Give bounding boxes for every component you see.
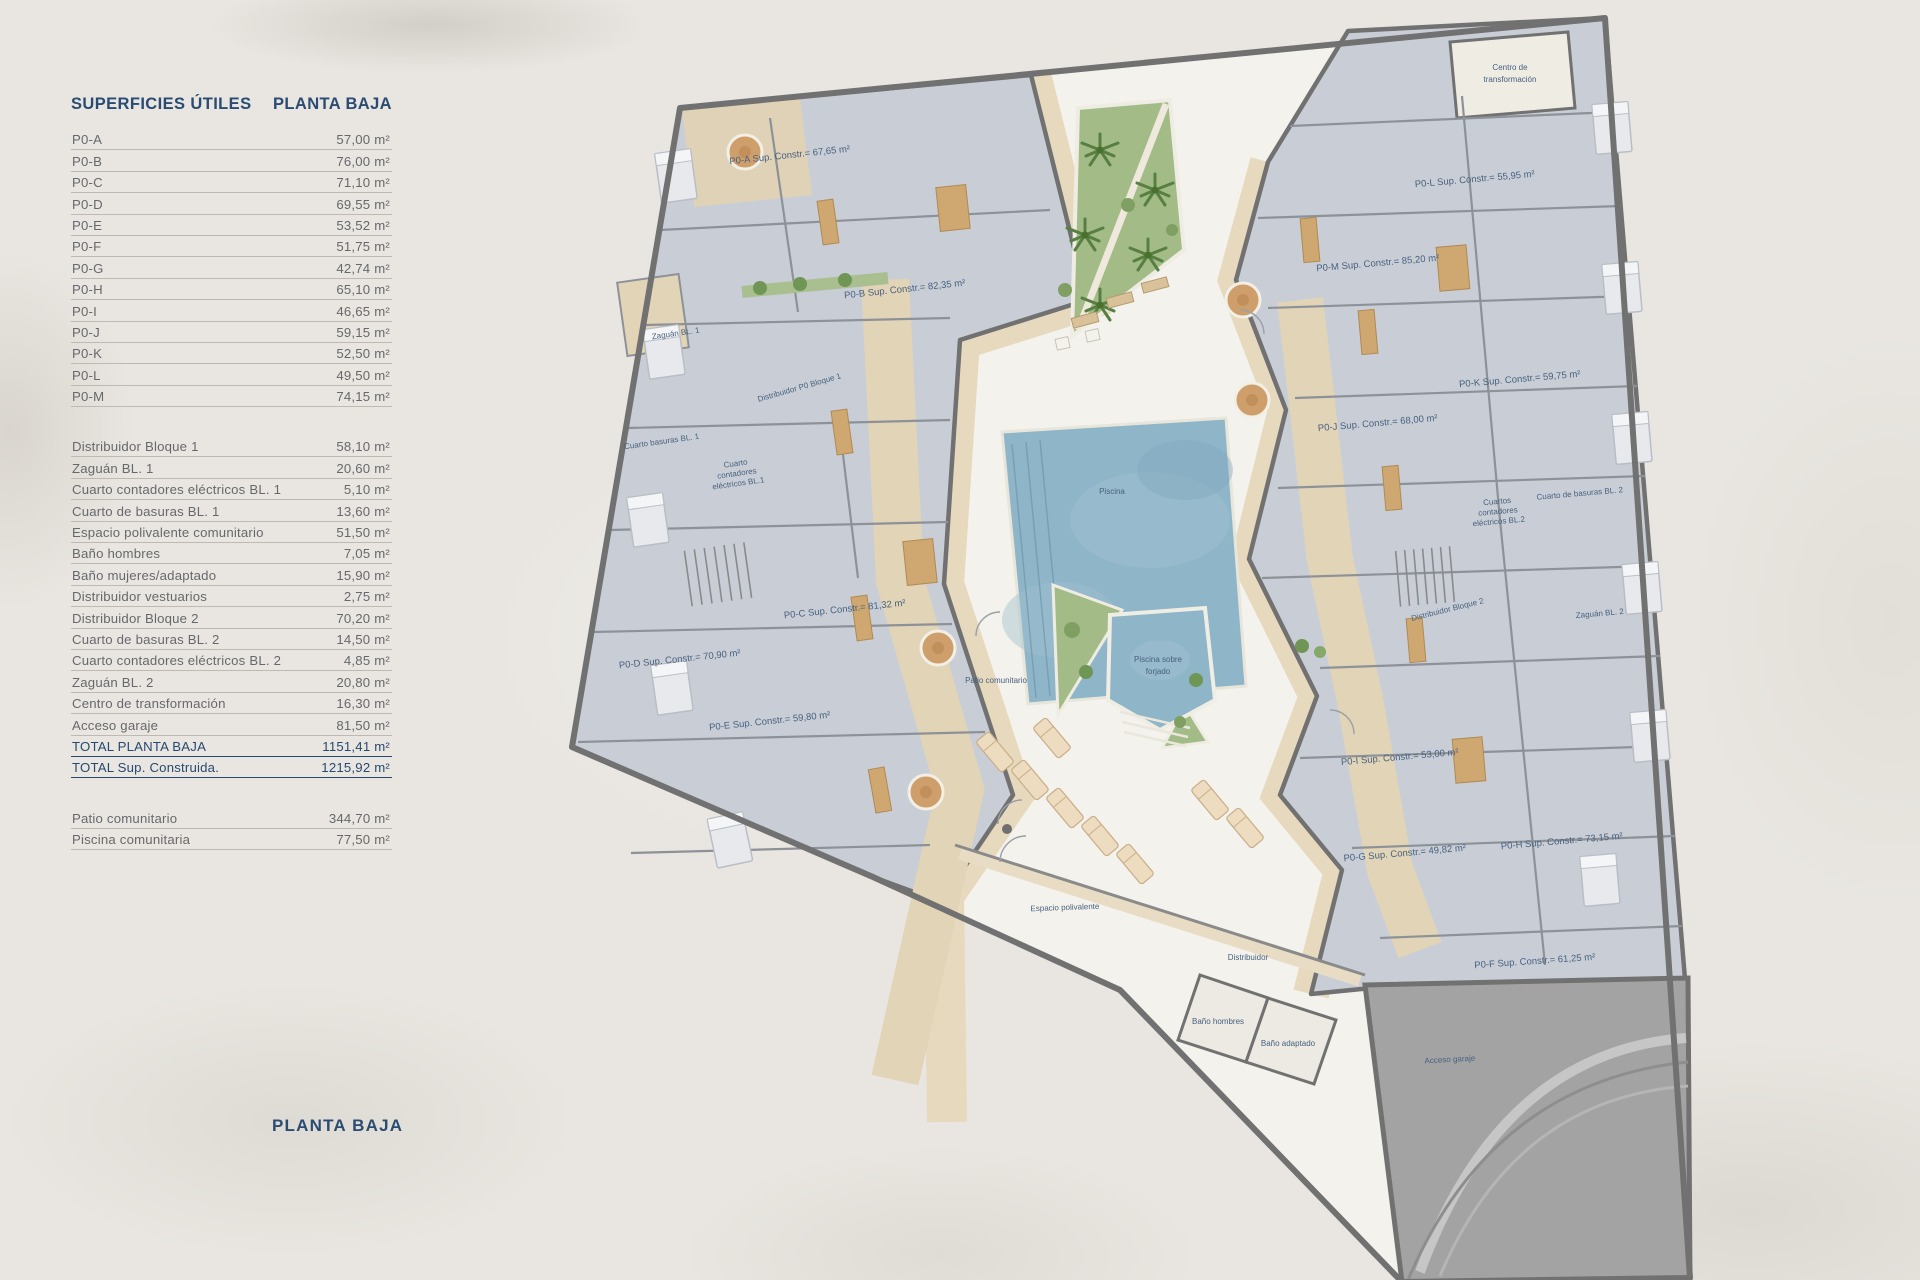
table-row: Patio comunitario344,70 m² [71, 807, 392, 828]
table-row: Centro de transformación16,30 m² [71, 693, 392, 714]
row-label: Cuarto contadores eléctricos BL. 1 [72, 482, 281, 497]
row-label: Baño hombres [72, 546, 160, 561]
svg-text:Centro de: Centro de [1492, 63, 1528, 72]
row-label: Patio comunitario [72, 811, 177, 826]
row-label: Piscina comunitaria [72, 832, 190, 847]
row-value: 71,10 m² [336, 175, 390, 190]
row-label: Zaguán BL. 1 [72, 461, 154, 476]
table-row: P0-I46,65 m² [71, 300, 392, 321]
table-row: P0-J59,15 m² [71, 322, 392, 343]
svg-text:Piscina sobre: Piscina sobre [1134, 655, 1183, 664]
row-label: Baño mujeres/adaptado [72, 568, 216, 583]
table-title: SUPERFICIES ÚTILES [71, 95, 251, 114]
row-label: Distribuidor Bloque 2 [72, 611, 199, 626]
bano-adaptado-label: Baño adaptado [1261, 1039, 1316, 1048]
svg-text:forjado: forjado [1146, 667, 1171, 676]
row-label: P0-D [72, 197, 103, 212]
row-label: P0-C [72, 175, 103, 190]
row-value: 20,80 m² [336, 675, 390, 690]
row-value: 77,50 m² [336, 832, 390, 847]
distribuidor-label: Distribuidor [1228, 953, 1269, 962]
row-label: P0-K [72, 346, 102, 361]
row-value: 20,60 m² [336, 461, 390, 476]
areas-table: SUPERFICIES ÚTILES PLANTA BAJA P0-A57,00… [71, 95, 392, 850]
table-row: P0-K52,50 m² [71, 343, 392, 364]
row-value: 16,30 m² [336, 696, 390, 711]
unit-area-rows: P0-A57,00 m²P0-B76,00 m²P0-C71,10 m²P0-D… [71, 129, 392, 407]
table-row: Piscina comunitaria77,50 m² [71, 829, 392, 850]
row-label: Espacio polivalente comunitario [72, 525, 264, 540]
row-value: 57,00 m² [336, 132, 390, 147]
row-label: Cuarto de basuras BL. 2 [72, 632, 220, 647]
table-row: Distribuidor vestuarios2,75 m² [71, 586, 392, 607]
table-row: Zaguán BL. 120,60 m² [71, 457, 392, 478]
pool-label: Piscina [1099, 487, 1125, 496]
table-header: SUPERFICIES ÚTILES PLANTA BAJA [71, 95, 392, 114]
table-row: Espacio polivalente comunitario51,50 m² [71, 522, 392, 543]
table-row: P0-M74,15 m² [71, 386, 392, 407]
row-label: P0-J [72, 325, 100, 340]
table-row: P0-L49,50 m² [71, 364, 392, 385]
table-row: Distribuidor Bloque 158,10 m² [71, 436, 392, 457]
table-row: Cuarto de basuras BL. 214,50 m² [71, 629, 392, 650]
row-value: 81,50 m² [336, 718, 390, 733]
table-row: Distribuidor Bloque 270,20 m² [71, 607, 392, 628]
row-value: 51,50 m² [336, 525, 390, 540]
table-subtitle: PLANTA BAJA [273, 95, 392, 114]
row-label: P0-G [72, 261, 104, 276]
row-value: 42,74 m² [336, 261, 390, 276]
row-label: TOTAL Sup. Construida. [72, 760, 219, 775]
row-value: 7,05 m² [344, 546, 390, 561]
row-value: 5,10 m² [344, 482, 390, 497]
row-value: 1151,41 m² [322, 739, 390, 754]
row-value: 58,10 m² [336, 439, 390, 454]
table-row: P0-E53,52 m² [71, 215, 392, 236]
table-row: P0-G42,74 m² [71, 257, 392, 278]
row-value: 49,50 m² [336, 368, 390, 383]
row-value: 13,60 m² [336, 504, 390, 519]
table-row: Baño hombres7,05 m² [71, 543, 392, 564]
row-value: 53,52 m² [336, 218, 390, 233]
total-row: TOTAL PLANTA BAJA1151,41 m² [71, 736, 392, 757]
row-label: P0-E [72, 218, 102, 233]
patio-label: Patio comunitario [965, 676, 1027, 685]
row-label: P0-H [72, 282, 103, 297]
row-label: Acceso garaje [72, 718, 158, 733]
row-label: Cuarto contadores eléctricos BL. 2 [72, 653, 281, 668]
row-label: Distribuidor vestuarios [72, 589, 207, 604]
row-label: P0-F [72, 239, 101, 254]
row-label: P0-L [72, 368, 101, 383]
sheet-title: PLANTA BAJA [272, 1116, 403, 1136]
outdoor-area-rows: Patio comunitario344,70 m²Piscina comuni… [71, 807, 392, 850]
row-label: P0-M [72, 389, 104, 404]
row-value: 59,15 m² [336, 325, 390, 340]
row-label: P0-A [72, 132, 102, 147]
table-row: P0-H65,10 m² [71, 279, 392, 300]
plan-sheet: { "sidebar": { "title_left": "SUPERFICIE… [0, 0, 1920, 1280]
row-value: 4,85 m² [344, 653, 390, 668]
row-label: Cuarto de basuras BL. 1 [72, 504, 220, 519]
row-value: 51,75 m² [336, 239, 390, 254]
row-value: 46,65 m² [336, 304, 390, 319]
table-row: P0-A57,00 m² [71, 129, 392, 150]
table-row: Cuarto contadores eléctricos BL. 24,85 m… [71, 650, 392, 671]
row-value: 15,90 m² [336, 568, 390, 583]
table-row: Baño mujeres/adaptado15,90 m² [71, 564, 392, 585]
row-label: P0-B [72, 154, 102, 169]
row-value: 344,70 m² [329, 811, 390, 826]
row-value: 1215,92 m² [321, 760, 390, 775]
row-label: TOTAL PLANTA BAJA [72, 739, 206, 754]
row-value: 69,55 m² [336, 197, 390, 212]
row-value: 74,15 m² [336, 389, 390, 404]
column [1002, 824, 1012, 834]
row-value: 52,50 m² [336, 346, 390, 361]
total-row: TOTAL Sup. Construida.1215,92 m² [71, 757, 392, 778]
row-label: P0-I [72, 304, 97, 319]
bano-hombres-label: Baño hombres [1192, 1017, 1244, 1026]
row-label: Zaguán BL. 2 [72, 675, 154, 690]
row-value: 65,10 m² [336, 282, 390, 297]
table-row: P0-C71,10 m² [71, 172, 392, 193]
table-row: P0-B76,00 m² [71, 150, 392, 171]
row-label: Distribuidor Bloque 1 [72, 439, 199, 454]
row-value: 76,00 m² [336, 154, 390, 169]
svg-text:transformación: transformación [1484, 75, 1537, 84]
common-area-rows: Distribuidor Bloque 158,10 m²Zaguán BL. … [71, 436, 392, 778]
table-row: Zaguán BL. 220,80 m² [71, 671, 392, 692]
table-row: P0-F51,75 m² [71, 236, 392, 257]
table-row: Acceso garaje81,50 m² [71, 714, 392, 735]
row-value: 70,20 m² [336, 611, 390, 626]
row-value: 2,75 m² [344, 589, 390, 604]
garage-area [1365, 978, 1690, 1280]
row-label: Centro de transformación [72, 696, 226, 711]
table-row: P0-D69,55 m² [71, 193, 392, 214]
row-value: 14,50 m² [336, 632, 390, 647]
table-row: Cuarto contadores eléctricos BL. 15,10 m… [71, 479, 392, 500]
table-row: Cuarto de basuras BL. 113,60 m² [71, 500, 392, 521]
